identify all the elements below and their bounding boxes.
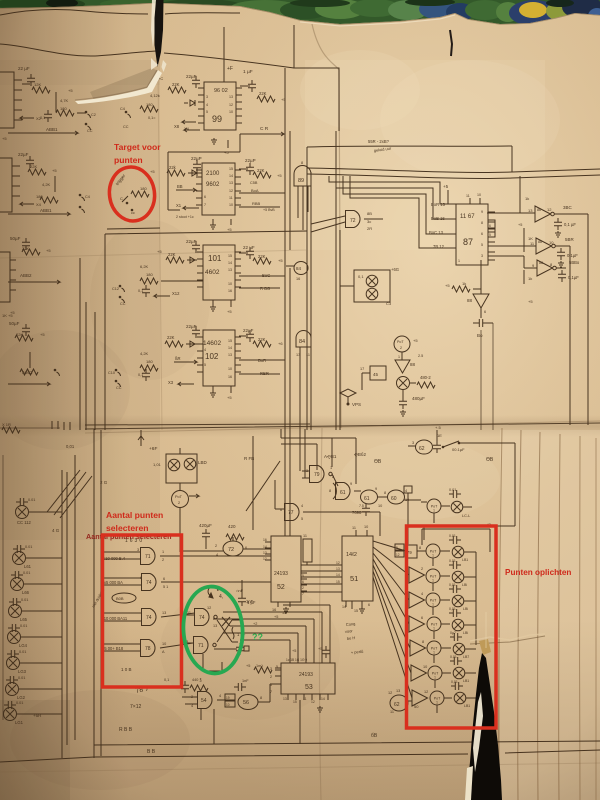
svg-text:4: 4 [219,694,221,698]
svg-text:ΘB: ΘB [374,459,382,465]
svg-text:PoT: PoT [397,340,404,344]
svg-text:0,01: 0,01 [451,680,458,684]
svg-text:0,01: 0,01 [66,444,75,449]
svg-text:22K: 22K [167,335,175,340]
svg-text:1nF: 1nF [242,679,249,683]
svg-text:11: 11 [306,353,310,357]
svg-text:22µF: 22µF [18,152,29,157]
svg-text:13: 13 [283,697,287,701]
svg-text:11: 11 [187,611,191,615]
svg-text:1E: 1E [437,433,442,438]
svg-text:4: 4 [405,489,407,493]
svg-text:4: 4 [216,553,218,557]
svg-text:L65: L65 [20,617,28,622]
svg-text:7B 12: 7B 12 [433,244,445,249]
svg-text:11: 11 [229,196,233,200]
svg-text:10: 10 [549,240,554,245]
svg-text:5BBo: 5BBo [569,260,580,265]
svg-text:+6: +6 [278,341,283,346]
svg-text:6: 6 [140,576,142,580]
svg-text:0,1: 0,1 [358,274,364,279]
svg-text:88: 88 [538,240,542,244]
svg-text:0.01: 0.01 [21,598,28,602]
svg-text:PoT: PoT [175,495,183,499]
svg-text:22µP: 22µP [245,158,256,163]
svg-text:Target voor: Target voor [114,142,161,152]
svg-text:10: 10 [477,193,481,197]
svg-text:16: 16 [296,277,300,281]
svg-text:12: 12 [336,561,340,565]
svg-text:8: 8 [481,221,483,225]
svg-text:+5: +5 [52,168,57,173]
svg-text:11: 11 [352,526,356,530]
svg-text:13: 13 [228,353,232,357]
svg-text:00.1µF: 00.1µF [452,447,465,452]
svg-text:ABB2: ABB2 [20,273,32,278]
svg-text:1k: 1k [525,196,529,201]
svg-text:Bo: Bo [477,333,483,338]
svg-text:voor: voor [345,628,354,634]
svg-text:12: 12 [229,189,233,193]
svg-text:420: 420 [228,524,236,529]
svg-text:Aantal punten: Aantal punten [106,510,163,520]
svg-text:2: 2 [178,501,180,505]
svg-text:13: 13 [528,208,533,213]
svg-text:X1: X1 [176,203,182,208]
svg-text:24193: 24193 [274,571,288,577]
svg-text:22 µF: 22 µF [243,245,255,250]
svg-text:14: 14 [228,346,232,350]
svg-text:480-2: 480-2 [420,375,431,380]
svg-text:0µ7: 0µ7 [450,631,456,635]
svg-text:2 G: 2 G [100,480,108,485]
svg-text:6: 6 [204,195,206,199]
svg-text:0.01: 0.01 [20,624,27,628]
svg-text:+5: +5 [227,395,232,400]
svg-text:8B: 8B [367,211,372,216]
svg-text:15: 15 [228,339,232,343]
svg-text:56: 56 [243,700,249,706]
svg-text:13: 13 [336,567,340,571]
svg-text:13: 13 [228,268,232,272]
svg-text:14: 14 [263,545,267,549]
svg-text:3: 3 [206,95,208,99]
svg-text:+5: +5 [443,184,449,189]
svg-text:60: 60 [391,496,397,502]
svg-text:22K: 22K [258,337,266,342]
svg-text:4,7K: 4,7K [60,98,69,103]
svg-text:4: 4 [204,348,206,352]
svg-text:71: 71 [145,554,151,560]
svg-text:12: 12 [388,691,392,695]
svg-text:2: 2 [421,567,423,571]
svg-text:-5 00+ B18: -5 00+ B18 [103,646,124,651]
svg-text:+6R: +6R [33,713,42,718]
svg-text:8: 8 [384,491,386,495]
svg-text:0,1: 0,1 [164,678,169,682]
svg-text:0,1µF: 0,1µF [567,253,578,258]
svg-text:72: 72 [228,547,234,553]
svg-text:15: 15 [229,167,233,171]
svg-text:+5: +5 [46,248,51,253]
svg-text:+5: +5 [227,309,232,314]
svg-text:99: 99 [212,114,222,124]
svg-text:0.01: 0.01 [450,655,457,659]
svg-text:X 1R: X 1R [2,422,11,427]
svg-text:9: 9 [375,487,377,491]
svg-text:ABB1: ABB1 [46,127,58,132]
svg-text:8: 8 [419,546,421,550]
svg-text:5: 5 [301,517,303,521]
svg-text:LB7: LB7 [463,655,469,659]
svg-text:+5: +5 [518,223,522,227]
svg-text:22µP: 22µP [191,156,202,161]
svg-text:14602: 14602 [203,340,221,347]
svg-text:22K: 22K [258,254,266,259]
svg-text:15: 15 [354,609,358,613]
svg-text:74: 74 [146,580,152,586]
svg-text:78: 78 [145,646,151,652]
svg-text:16: 16 [263,538,267,542]
svg-text:1K +5: 1K +5 [2,313,13,318]
svg-text:1 µF: 1 µF [243,69,253,75]
svg-text:C3: C3 [386,301,392,306]
svg-text:+5: +5 [246,664,250,668]
svg-text:0.01: 0.01 [28,498,35,502]
svg-text:12: 12 [263,557,267,561]
svg-text:0,01: 0,01 [449,583,456,587]
svg-text:2.5: 2.5 [418,354,423,358]
svg-text:51: 51 [350,574,358,583]
svg-text:+5: +5 [445,283,450,288]
svg-text:0.01: 0.01 [449,559,456,563]
svg-text:19: 19 [226,696,230,700]
svg-text:13: 13 [229,95,233,99]
svg-text:420µF: 420µF [199,523,212,528]
svg-text:3: 3 [270,667,272,671]
svg-text:13: 13 [396,689,400,693]
svg-text:4602: 4602 [205,269,220,276]
svg-text:12: 12 [311,700,315,704]
svg-text:12: 12 [207,606,211,610]
svg-text:14ℓ2: 14ℓ2 [346,552,357,558]
svg-text:C4: C4 [85,195,90,199]
svg-text:17: 17 [360,367,364,371]
svg-text:71: 71 [198,643,204,649]
svg-text:6: 6 [489,224,491,228]
svg-text:BB: BB [177,184,183,189]
svg-text:88: 88 [410,362,416,367]
svg-text:BoC 13: BoC 13 [429,230,444,235]
svg-text:88: 88 [467,298,473,303]
svg-text:L66: L66 [22,590,30,595]
svg-text:LBi: LBi [462,583,467,587]
svg-text:Cong: Cong [346,621,356,627]
svg-text:LB1: LB1 [464,704,470,708]
svg-text:K10 000 BA11: K10 000 BA11 [101,616,128,621]
svg-text:BoR 15: BoR 15 [431,202,446,207]
svg-text:86: 86 [537,208,541,212]
svg-text:0,01: 0,01 [449,607,456,611]
svg-text:7: 7 [302,592,304,596]
svg-text:61: 61 [364,496,370,502]
svg-text:11: 11 [303,697,307,701]
svg-text:74: 74 [146,615,152,621]
svg-text:10: 10 [378,504,382,508]
svg-text:L61: L61 [24,564,32,569]
svg-text:X4: X4 [36,202,42,207]
svg-text:3c: 3c [367,219,371,224]
svg-text:14: 14 [321,697,325,701]
svg-text:22µF: 22µF [186,239,197,244]
svg-text:VPS: VPS [352,402,361,407]
svg-text:be H: be H [347,635,356,641]
svg-text:55R - 2xB?: 55R - 2xB? [368,139,390,144]
svg-text:74: 74 [199,615,205,621]
svg-text:+5: +5 [318,647,322,651]
svg-text:180: 180 [146,272,153,277]
svg-text:11: 11 [390,710,394,714]
svg-text:14: 14 [228,261,232,265]
svg-text:6,2K: 6,2K [140,264,149,269]
svg-text:0,1 µF: 0,1 µF [564,222,576,227]
svg-text:15: 15 [228,254,232,258]
svg-text:C4: C4 [120,107,125,111]
svg-text:B B: B B [147,749,156,755]
svg-text:0.01: 0.01 [18,676,25,680]
svg-text:1c 1B 1G 1Θ 9: 1c 1B 1G 1Θ 9 [286,658,307,662]
svg-text:LBD: LBD [198,460,208,465]
svg-text:6: 6 [484,310,486,314]
svg-text:1: 1 [162,550,164,554]
svg-text:0.01: 0.01 [23,571,30,575]
svg-text:+5: +5 [150,169,155,174]
svg-text:cc: cc [131,211,135,215]
svg-text:C: C [120,196,123,201]
svg-text:+5: +5 [274,615,278,619]
svg-text:LB1: LB1 [463,679,469,683]
svg-text:2: 2 [215,544,217,548]
svg-text:1: 1 [398,355,400,359]
svg-text:10: 10 [228,282,232,286]
svg-text:+6G: +6G [391,267,399,272]
svg-text:2: 2 [162,558,164,562]
svg-text:1 0 B: 1 0 B [121,667,132,672]
svg-text:4,12k: 4,12k [150,93,160,98]
svg-text:9: 9 [396,546,398,550]
svg-text:0.01: 0.01 [449,534,456,538]
svg-text:+5: +5 [40,332,45,337]
svg-text:13: 13 [263,551,267,555]
svg-text:22K: 22K [168,252,176,257]
svg-text:5BR: 5BR [565,237,575,242]
svg-text:+5: +5 [157,249,162,254]
svg-text:1,01: 1,01 [153,462,162,467]
svg-text:10: 10 [229,203,233,207]
svg-text:84: 84 [296,266,302,271]
svg-text:+5: +5 [277,173,282,178]
svg-text:22K: 22K [259,91,267,96]
svg-text:3: 3 [412,441,414,445]
svg-text:10: 10 [229,110,233,114]
svg-text:11: 11 [466,194,470,198]
svg-text:C10: C10 [108,371,115,375]
svg-text:22K: 22K [257,168,265,173]
svg-text:+5: +5 [68,88,73,93]
svg-text:2: 2 [302,586,304,590]
svg-text:5: 5 [489,233,491,237]
svg-text:LBi: LBi [463,607,468,611]
svg-text:13: 13 [213,624,217,628]
svg-text:101: 101 [208,254,222,263]
svg-text:9: 9 [481,210,483,214]
svg-text:2100: 2100 [206,171,220,177]
svg-text:22µF: 22µF [186,74,197,79]
svg-text:2 stoot +1c: 2 stoot +1c [176,215,194,219]
svg-text:C2: C2 [91,113,96,117]
svg-text:6: 6 [163,577,165,581]
svg-text:79: 79 [314,472,320,478]
svg-text:6: 6 [421,616,423,620]
svg-text:6: 6 [481,232,483,236]
svg-text:4 G: 4 G [52,528,60,533]
svg-text:0,1: 0,1 [138,373,143,377]
svg-text:+5: +5 [292,649,296,653]
svg-text:62: 62 [419,446,425,452]
svg-text:LG3: LG3 [18,669,27,674]
svg-text:14: 14 [229,174,233,178]
svg-text:16: 16 [272,608,276,612]
svg-text:+5: +5 [281,97,286,102]
svg-text:0.01: 0.01 [25,545,32,549]
svg-text:62: 62 [394,702,400,708]
svg-text:10: 10 [228,367,232,371]
svg-text:4: 4 [421,592,423,596]
svg-text:+5 BvB: +5 BvB [263,208,275,212]
svg-text:52: 52 [277,584,285,591]
svg-text:11 67: 11 67 [460,214,475,220]
svg-text:22k: 22k [169,165,177,170]
svg-text:LBi: LBi [463,631,468,635]
svg-text:10: 10 [423,665,427,669]
svg-text:8: 8 [301,161,303,165]
svg-text:5: 5 [206,110,208,114]
svg-text:R B B: R B B [119,727,133,733]
svg-text:14: 14 [336,573,340,577]
svg-text:53: 53 [305,684,313,691]
svg-text:LG1: LG1 [15,720,24,725]
svg-text:0,1=: 0,1= [148,116,156,120]
svg-text:8: 8 [260,696,262,700]
svg-text:22K: 22K [30,164,37,169]
svg-text:CC: CC [120,302,126,306]
svg-text:440 ℥: 440 ℥ [192,677,202,682]
svg-text:9: 9 [350,482,352,486]
svg-text:6: 6 [302,580,304,584]
svg-text:84: 84 [299,339,305,345]
svg-text:CC: CC [123,125,129,129]
svg-text:+6F: +6F [149,446,157,452]
svg-text:8: 8 [422,640,424,644]
svg-text:LC-L: LC-L [462,514,470,518]
svg-text:x5 000 BA: x5 000 BA [104,580,123,585]
svg-text:CC 112: CC 112 [17,520,32,525]
svg-text:0,1: 0,1 [138,289,143,293]
svg-text:2R: 2R [367,226,372,231]
svg-text:16: 16 [228,289,232,293]
svg-text:+5: +5 [227,227,232,232]
svg-text:22µF: 22µF [186,324,197,329]
svg-text:X2: X2 [36,116,42,121]
svg-text:Punten oplichten: Punten oplichten [505,568,571,577]
svg-text:50µF: 50µF [10,236,21,241]
svg-text:+5: +5 [2,136,7,141]
svg-text:22 µF: 22 µF [18,66,30,71]
svg-text:15: 15 [336,580,340,584]
svg-text:180: 180 [146,359,153,364]
svg-text:72: 72 [350,218,356,224]
svg-text:77: 77 [288,510,294,516]
svg-text:180: 180 [140,186,147,191]
svg-text:бB: бB [371,733,378,739]
svg-text:4: 4 [191,704,193,708]
svg-text:CC: CC [116,386,122,390]
svg-text:88: 88 [539,261,543,265]
svg-text:C R: C R [260,126,269,132]
svg-text:89: 89 [298,178,304,184]
svg-text:9602: 9602 [206,182,220,188]
svg-text:11: 11 [303,534,307,538]
svg-text:ßR: ßR [175,356,181,361]
svg-text:3: 3 [137,548,139,552]
svg-text:LB1: LB1 [462,558,468,562]
svg-text:4,2K: 4,2K [140,351,149,356]
svg-text:5: 5 [204,363,206,367]
svg-text:1: 1 [330,466,332,470]
svg-text:15: 15 [293,700,297,704]
svg-text:10: 10 [162,642,166,646]
svg-text:13: 13 [296,353,300,357]
svg-text:1 µF: 1 µF [247,600,256,605]
svg-text:12: 12 [547,207,552,212]
svg-text:87: 87 [463,237,473,247]
svg-text:X12: X12 [172,291,180,296]
svg-text:5: 5 [481,243,483,247]
svg-text:12: 12 [396,553,400,557]
svg-text:punten: punten [114,155,143,165]
svg-text:480µF: 480µF [412,396,425,401]
svg-text:0.01: 0.01 [449,488,456,492]
svg-text:4,2K: 4,2K [42,182,51,187]
svg-text:5 1: 5 1 [163,585,168,589]
svg-text:ΘB: ΘB [486,457,494,463]
svg-text:6: 6 [368,603,370,607]
svg-text:LG4: LG4 [19,643,28,648]
svg-text:96 02: 96 02 [214,88,228,94]
svg-text:22µF: 22µF [243,328,254,333]
svg-text:+2: +2 [253,622,257,626]
svg-text:12: 12 [229,103,233,107]
svg-text:??: ?? [252,632,263,642]
svg-text:12K: 12K [34,82,41,87]
svg-text:14: 14 [342,605,346,609]
svg-text:7: 7 [204,203,206,207]
svg-text:13: 13 [162,611,166,615]
svg-text:4: 4 [301,504,303,508]
svg-text:10: 10 [364,525,368,529]
svg-text:BoB 16: BoB 16 [431,216,445,221]
svg-text:X3: X3 [168,380,174,385]
